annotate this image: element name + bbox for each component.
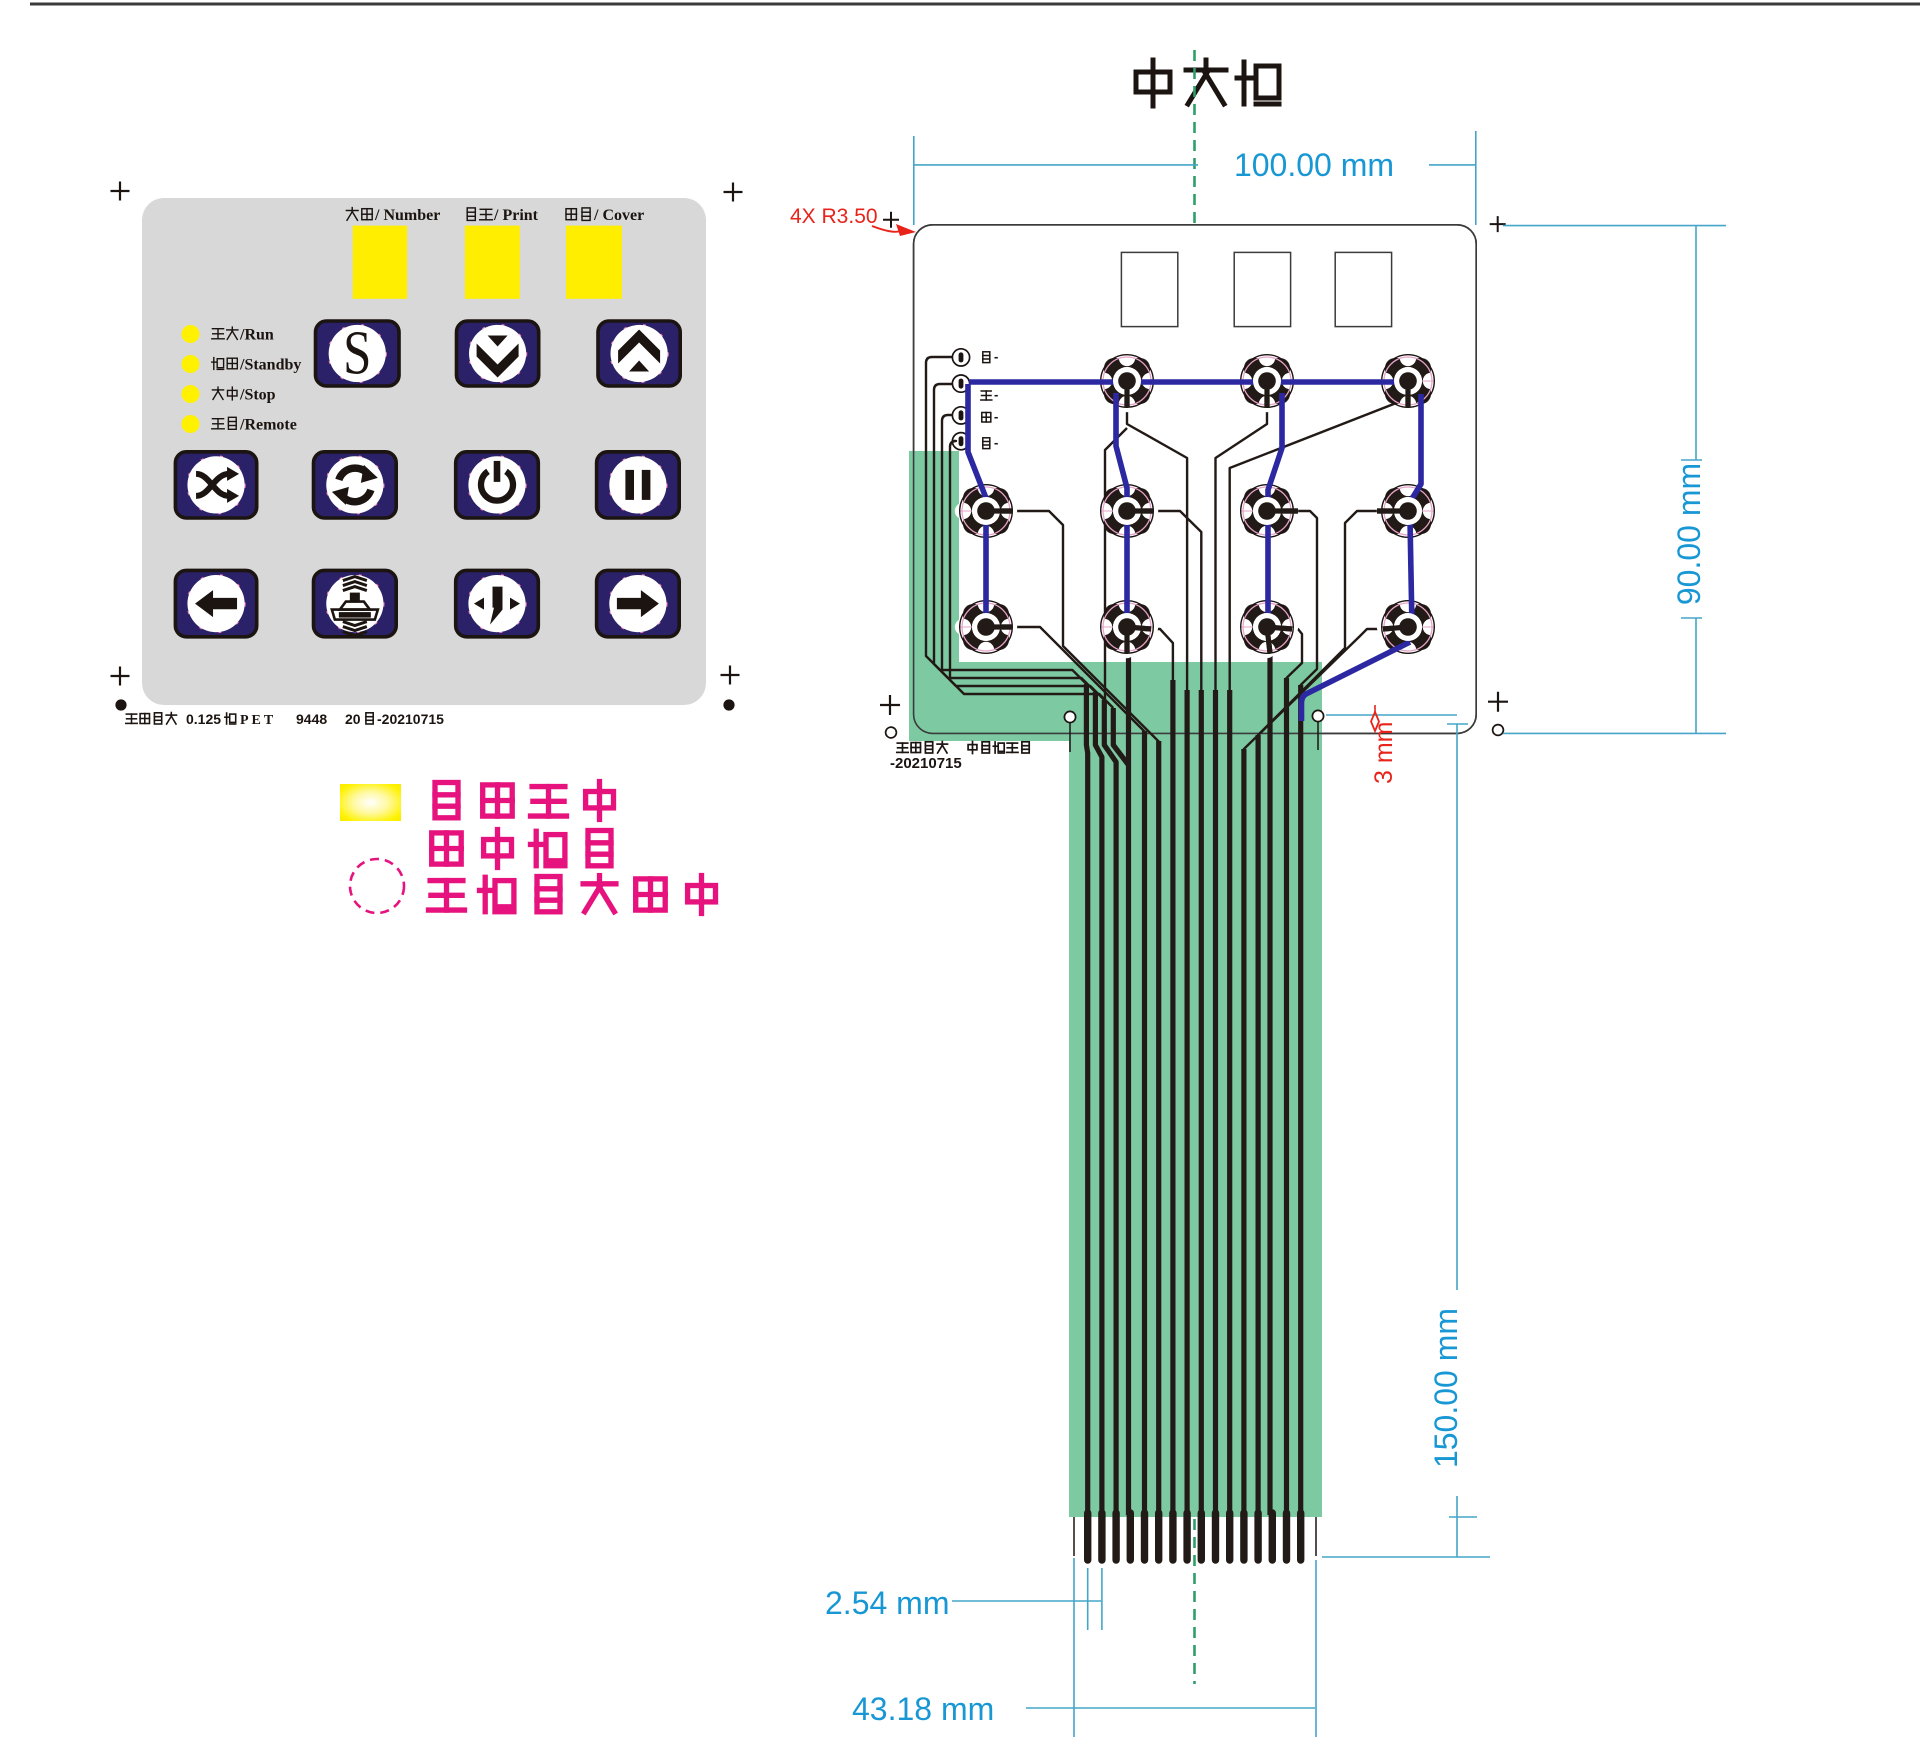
svg-text:0.125: 0.125 — [186, 711, 221, 727]
svg-text:-20210715: -20210715 — [890, 755, 962, 772]
svg-text:2.54 mm: 2.54 mm — [825, 1585, 949, 1621]
svg-text:150.00 mm: 150.00 mm — [1428, 1308, 1464, 1468]
svg-text:/Standby: /Standby — [239, 357, 301, 374]
svg-text:/Remote: /Remote — [239, 417, 297, 434]
svg-text:3 mm: 3 mm — [1370, 722, 1398, 785]
svg-text:-20210715: -20210715 — [377, 711, 444, 727]
svg-text:/ Print: / Print — [493, 207, 539, 224]
svg-text:PET: PET — [240, 713, 276, 728]
svg-text:9448: 9448 — [296, 711, 327, 727]
svg-text:S: S — [343, 319, 371, 388]
svg-text:/ Number: / Number — [374, 207, 440, 224]
svg-text:-: - — [994, 409, 998, 424]
svg-text:4X R3.50: 4X R3.50 — [790, 205, 878, 228]
svg-text:43.18 mm: 43.18 mm — [852, 1691, 994, 1727]
svg-text:100.00 mm: 100.00 mm — [1234, 147, 1394, 183]
svg-text:/Run: /Run — [239, 327, 274, 344]
svg-text:/ Cover: / Cover — [593, 207, 644, 224]
svg-text:20: 20 — [345, 711, 361, 727]
svg-text:-: - — [994, 349, 998, 364]
svg-text:90.00 mm: 90.00 mm — [1671, 463, 1707, 605]
svg-text:/Stop: /Stop — [239, 387, 276, 404]
svg-text:-: - — [994, 435, 998, 450]
svg-text:-: - — [994, 387, 998, 402]
